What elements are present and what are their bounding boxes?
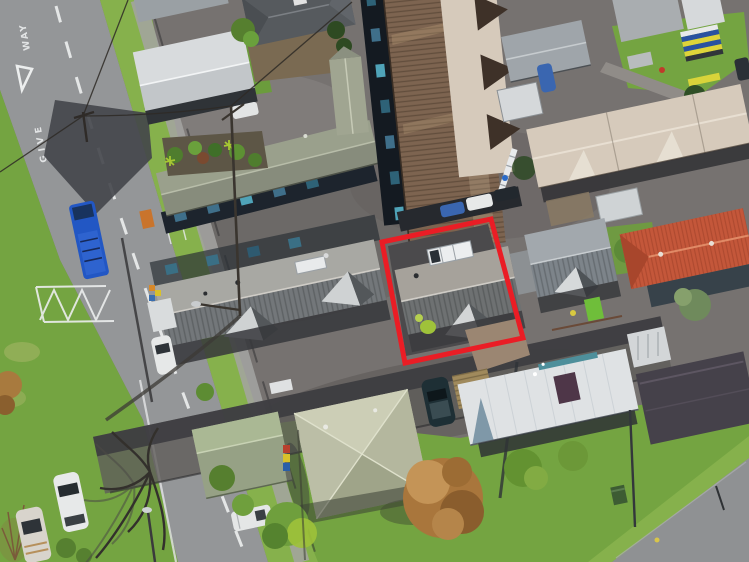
blue-object: [502, 175, 508, 181]
shrub: [229, 144, 245, 160]
yellow-object: [570, 310, 576, 316]
hedge: [512, 156, 536, 180]
red-object: [659, 67, 665, 73]
red-shrub: [197, 152, 209, 164]
bin-blue: [149, 295, 155, 301]
lime-bush: [415, 314, 423, 322]
road-marker-dot: [655, 538, 660, 543]
tree: [243, 31, 259, 47]
dry-grass-patch: [4, 342, 40, 362]
courtyard-garden: [162, 131, 268, 176]
lamp-head: [142, 507, 152, 513]
window: [380, 99, 390, 113]
window: [385, 135, 395, 149]
tree-grey-green: [674, 288, 692, 306]
hedge: [327, 21, 345, 39]
bin-orange: [149, 285, 155, 291]
lamp-head: [191, 301, 201, 307]
bin-yellow: [283, 454, 290, 462]
tree: [558, 441, 588, 471]
shrub: [248, 153, 262, 167]
bin-yellow: [155, 290, 161, 296]
window: [366, 0, 376, 6]
aerial-photo: WAY GIVE: [0, 0, 749, 562]
berm-bush: [232, 494, 254, 516]
window: [375, 64, 385, 78]
caravan-window: [255, 509, 267, 521]
townhouse-right-block: [524, 218, 621, 313]
window: [371, 28, 381, 42]
berm-bush: [209, 465, 235, 491]
tree: [524, 466, 548, 490]
lime-bush: [420, 320, 436, 334]
bush: [56, 538, 76, 558]
bin-red: [283, 445, 290, 453]
bush: [262, 523, 288, 549]
shrub: [208, 143, 222, 157]
bin-blue: [283, 463, 290, 471]
berm-bush: [196, 383, 214, 401]
window: [390, 171, 400, 185]
